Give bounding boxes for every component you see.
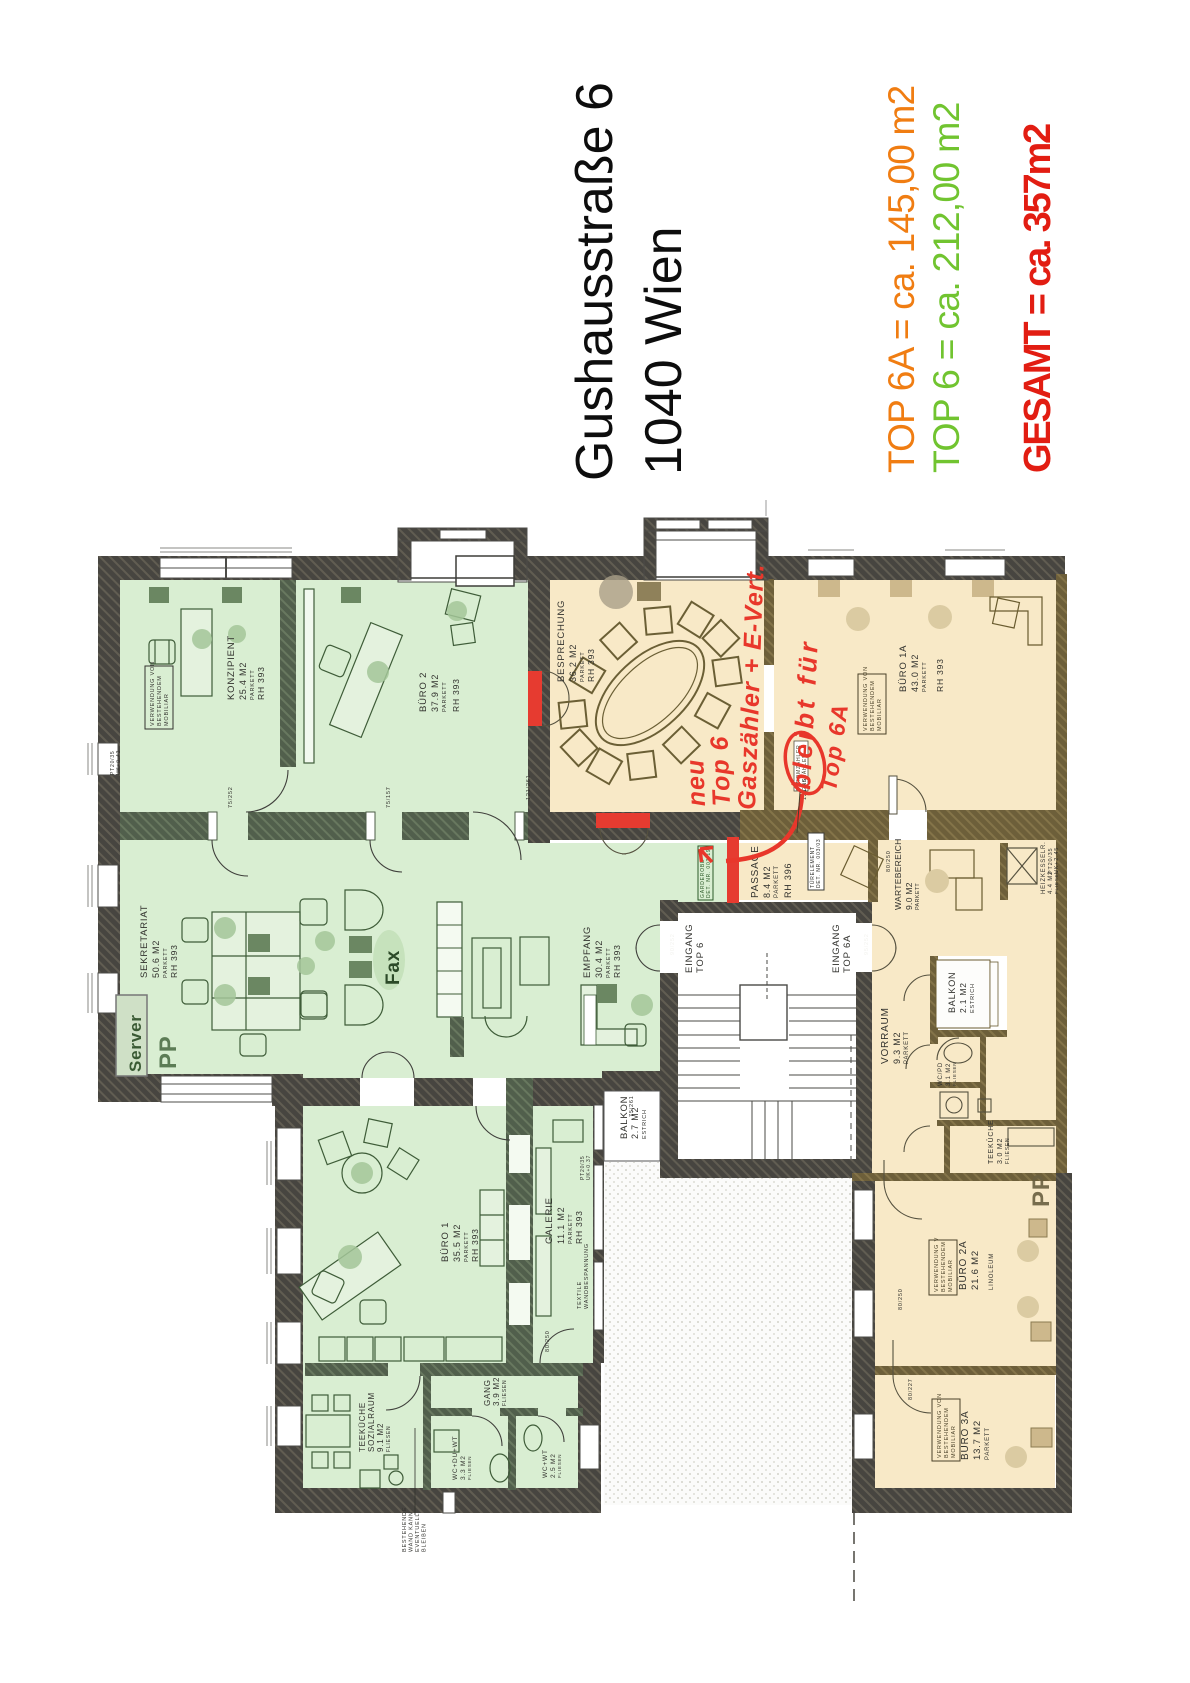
svg-text:3.3 M2: 3.3 M2	[460, 1455, 467, 1480]
svg-text:BALKON: BALKON	[947, 972, 957, 1013]
svg-text:Fax: Fax	[383, 950, 404, 985]
svg-text:FLIESEN: FLIESEN	[467, 1456, 472, 1480]
svg-text:EMPFANG: EMPFANG	[582, 926, 593, 978]
svg-text:37.9 M2: 37.9 M2	[430, 674, 440, 712]
svg-text:BÜRO 3A: BÜRO 3A	[959, 1410, 971, 1460]
svg-text:BESTEHENDEM: BESTEHENDEM	[157, 675, 163, 726]
svg-text:PARKETT: PARKETT	[915, 883, 921, 910]
svg-text:WC/PD: WC/PD	[938, 1062, 944, 1086]
svg-text:KONZIPIENT: KONZIPIENT	[226, 635, 237, 700]
svg-text:BESTEHENDEM: BESTEHENDEM	[941, 1241, 947, 1292]
svg-text:UK+2.45: UK+2.45	[1054, 847, 1060, 874]
svg-text:43.0 M2: 43.0 M2	[910, 654, 920, 692]
svg-text:TEEKÜCHE: TEEKÜCHE	[358, 1402, 367, 1452]
svg-text:GANG: GANG	[483, 1379, 492, 1406]
svg-text:BÜRO 1A: BÜRO 1A	[898, 645, 909, 692]
svg-text:WARTEBEREICH: WARTEBEREICH	[893, 838, 903, 910]
svg-text:2.1 M2: 2.1 M2	[958, 982, 968, 1013]
svg-text:BESTEHENDE: BESTEHENDE	[402, 1507, 408, 1552]
svg-text:EINGANG: EINGANG	[831, 924, 842, 973]
svg-text:MOBILIAR: MOBILIAR	[164, 693, 170, 726]
svg-text:FLIESEN: FLIESEN	[1005, 1138, 1011, 1164]
svg-text:BÜRO 2A: BÜRO 2A	[957, 1240, 969, 1290]
svg-text:EVENTUELL: EVENTUELL	[415, 1513, 421, 1552]
svg-text:RH 393: RH 393	[470, 1228, 480, 1262]
svg-text:SEKRETARIAT: SEKRETARIAT	[139, 905, 150, 978]
svg-text:VERWENDUNG V: VERWENDUNG V	[934, 1237, 940, 1292]
svg-text:SOZIALRAUM: SOZIALRAUM	[367, 1392, 376, 1452]
svg-text:DET. NR. 003/03: DET. NR. 003/03	[816, 838, 822, 888]
svg-text:TOP 6A = ca. 145,00 m2: TOP 6A = ca. 145,00 m2	[881, 86, 922, 473]
svg-text:BÜRO 2: BÜRO 2	[418, 672, 429, 712]
svg-text:PP: PP	[155, 1035, 182, 1069]
svg-text:9.3 M2: 9.3 M2	[892, 1032, 902, 1064]
svg-text:RH 393: RH 393	[451, 678, 461, 712]
svg-text:FLIESEN: FLIESEN	[952, 1062, 957, 1086]
svg-text:VERWENDUNG VON: VERWENDUNG VON	[150, 661, 156, 726]
svg-text:Gushausstraße 6: Gushausstraße 6	[566, 82, 624, 481]
svg-text:PARKETT: PARKETT	[774, 865, 780, 898]
svg-text:HEIZKESSELR.: HEIZKESSELR.	[1041, 841, 1047, 894]
svg-text:75/261: 75/261	[629, 1095, 635, 1117]
svg-text:UK+0.43: UK+0.43	[116, 750, 122, 775]
svg-text:MOBILIAR: MOBILIAR	[877, 698, 883, 731]
svg-text:VERWENDUNG VON: VERWENDUNG VON	[863, 666, 869, 731]
svg-text:PARKETT: PARKETT	[904, 1031, 910, 1064]
svg-text:BESPRECHUNG: BESPRECHUNG	[556, 600, 567, 682]
svg-text:WC+WT: WC+WT	[542, 1449, 549, 1478]
svg-text:LINOLEUM: LINOLEUM	[989, 1253, 995, 1290]
svg-text:RH 393: RH 393	[586, 648, 596, 682]
svg-text:95/252: 95/252	[864, 933, 870, 955]
svg-text:9.0 M2: 9.0 M2	[904, 882, 914, 910]
svg-text:3.0 M2: 3.0 M2	[997, 1138, 1004, 1164]
svg-text:80/250: 80/250	[886, 850, 892, 872]
svg-text:GESAMT = ca. 357m2: GESAMT = ca. 357m2	[1017, 124, 1059, 473]
svg-text:WANDBESPANNUNG: WANDBESPANNUNG	[584, 1243, 590, 1309]
svg-text:75/157: 75/157	[386, 786, 392, 808]
svg-text:1040 Wien: 1040 Wien	[635, 226, 693, 475]
svg-text:EINGANG: EINGANG	[684, 924, 695, 973]
svg-text:ESTRICH: ESTRICH	[970, 983, 976, 1013]
svg-text:ESTRICH: ESTRICH	[642, 1109, 648, 1139]
svg-text:8.4 M2: 8.4 M2	[762, 866, 772, 898]
svg-text:BLEIBEN: BLEIBEN	[422, 1523, 428, 1552]
svg-text:RH 393: RH 393	[612, 944, 622, 978]
svg-text:75/252: 75/252	[228, 786, 234, 808]
svg-text:25.4 M2: 25.4 M2	[238, 662, 248, 700]
svg-text:80/250: 80/250	[545, 1330, 551, 1352]
svg-text:TÜRELEMENT: TÜRELEMENT	[809, 846, 816, 888]
svg-text:PARKETT: PARKETT	[985, 1427, 991, 1460]
svg-text:MOBILIAR: MOBILIAR	[951, 1425, 957, 1458]
svg-text:11.1 M2: 11.1 M2	[556, 1207, 566, 1244]
svg-text:90/252: 90/252	[670, 933, 676, 955]
svg-text:30.4 M2: 30.4 M2	[594, 940, 604, 978]
svg-text:TEEKÜCHE: TEEKÜCHE	[987, 1119, 995, 1164]
svg-text:FLIESEN: FLIESEN	[557, 1454, 562, 1478]
svg-text:BESTEHENDEM: BESTEHENDEM	[944, 1407, 950, 1458]
svg-text:TEXTILE: TEXTILE	[577, 1281, 583, 1309]
svg-text:50.6 M2: 50.6 M2	[151, 940, 161, 978]
svg-text:13.7 M2: 13.7 M2	[972, 1420, 983, 1460]
svg-text:UK+0.37: UK+0.37	[586, 1155, 592, 1180]
svg-text:3.9 M2: 3.9 M2	[492, 1377, 501, 1406]
svg-text:RH 393: RH 393	[574, 1210, 584, 1244]
svg-text:PARKETT: PARKETT	[442, 681, 448, 712]
svg-text:80/227: 80/227	[908, 1378, 914, 1400]
svg-text:121/261: 121/261	[526, 775, 532, 800]
svg-text:RH 393: RH 393	[935, 658, 945, 692]
svg-text:2.5 M2: 2.5 M2	[550, 1453, 557, 1478]
svg-text:PP: PP	[1028, 1173, 1055, 1207]
svg-text:21.6 M2: 21.6 M2	[970, 1250, 981, 1290]
svg-text:WC+DU+WT: WC+DU+WT	[452, 1436, 459, 1480]
svg-text:GALERIE: GALERIE	[544, 1197, 555, 1244]
svg-text:BÜRO 1: BÜRO 1	[440, 1222, 451, 1262]
svg-text:80/250: 80/250	[898, 1288, 904, 1310]
svg-text:TOP 6A: TOP 6A	[842, 935, 853, 973]
svg-text:MOBILIAR: MOBILIAR	[948, 1259, 954, 1292]
svg-text:BESTEHENDEM: BESTEHENDEM	[870, 680, 876, 731]
svg-text:RH 393: RH 393	[256, 666, 266, 700]
svg-text:Server: Server	[126, 1014, 145, 1072]
svg-text:VORRAUM: VORRAUM	[880, 1007, 891, 1064]
svg-text:WAND KANN: WAND KANN	[409, 1511, 415, 1552]
svg-text:9.1 M2: 9.1 M2	[376, 1423, 385, 1452]
svg-text:TOP 6: TOP 6	[695, 942, 706, 973]
svg-text:36.2 M2: 36.2 M2	[568, 644, 578, 682]
svg-text:VERWENDUNG VON: VERWENDUNG VON	[937, 1393, 943, 1458]
svg-text:TOP 6 = ca. 212,00 m2: TOP 6 = ca. 212,00 m2	[925, 102, 967, 473]
svg-text:PARKETT: PARKETT	[922, 661, 928, 692]
svg-text:35.5 M2: 35.5 M2	[452, 1224, 462, 1262]
svg-text:Top 6: Top 6	[706, 735, 736, 807]
svg-text:FLIESEN: FLIESEN	[386, 1426, 392, 1452]
svg-text:FLIESEN: FLIESEN	[502, 1380, 508, 1406]
svg-text:RH 396: RH 396	[783, 863, 793, 898]
svg-text:RH 393: RH 393	[169, 944, 179, 978]
